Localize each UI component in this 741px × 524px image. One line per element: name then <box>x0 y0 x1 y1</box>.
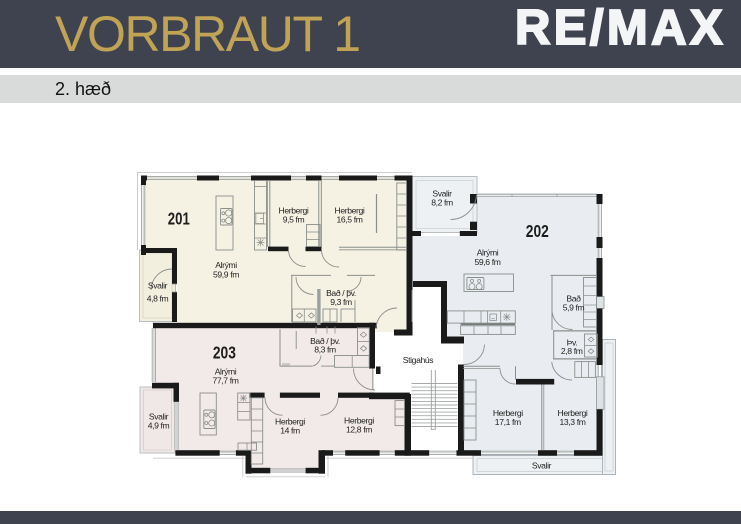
svg-text:9,5 fm: 9,5 fm <box>283 214 305 224</box>
svg-text:Svalir: Svalir <box>532 461 552 471</box>
svg-text:2,8 fm: 2,8 fm <box>561 346 583 356</box>
svg-text:4,9 fm: 4,9 fm <box>148 421 170 431</box>
svg-text:Svalir: Svalir <box>148 280 168 290</box>
svg-text:Stigahús: Stigahús <box>403 355 433 365</box>
svg-text:8,2 fm: 8,2 fm <box>431 198 453 208</box>
svg-text:8,3 fm: 8,3 fm <box>314 344 336 354</box>
svg-text:203: 203 <box>213 342 236 362</box>
svg-text:9,3 fm: 9,3 fm <box>330 297 352 307</box>
svg-text:59,9 fm: 59,9 fm <box>213 270 239 280</box>
svg-text:Alrými: Alrými <box>477 248 499 258</box>
svg-text:5,9 fm: 5,9 fm <box>563 303 585 313</box>
svg-text:77,7 fm: 77,7 fm <box>213 376 239 386</box>
svg-text:201: 201 <box>168 209 190 229</box>
svg-text:14 fm: 14 fm <box>280 426 300 436</box>
svg-text:Alrými: Alrými <box>215 260 237 270</box>
svg-text:59,6 fm: 59,6 fm <box>475 257 501 267</box>
svg-text:4,8 fm: 4,8 fm <box>147 294 169 304</box>
svg-text:202: 202 <box>526 221 549 241</box>
svg-text:12,8 fm: 12,8 fm <box>346 425 372 435</box>
svg-text:17,1 fm: 17,1 fm <box>495 417 521 427</box>
svg-text:16,5 fm: 16,5 fm <box>337 214 363 224</box>
svg-text:13,3 fm: 13,3 fm <box>560 417 586 427</box>
